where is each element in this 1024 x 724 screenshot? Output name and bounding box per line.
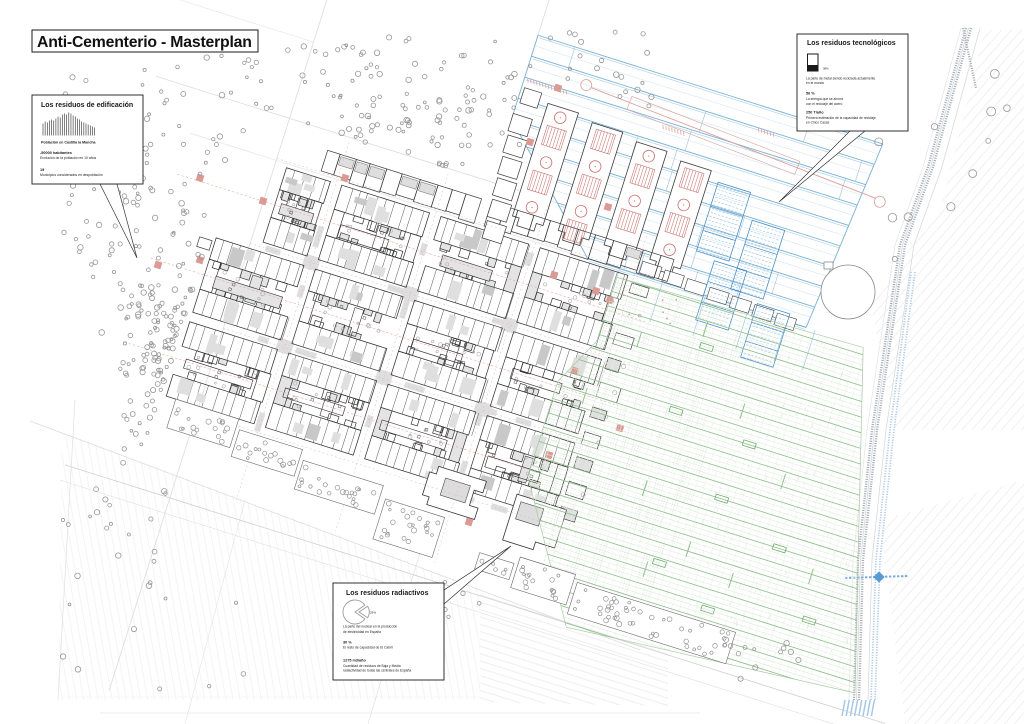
svg-text:Los residuos de edificación: Los residuos de edificación	[41, 102, 133, 109]
svg-text:La parte de metal siendo recic: La parte de metal siendo reciclada actua…	[806, 77, 875, 81]
svg-text:La energía que se ahorra: La energía que se ahorra	[806, 97, 843, 101]
svg-text:en el mundo: en el mundo	[806, 81, 824, 85]
svg-text:Cuantidad de residuos de Baja: Cuantidad de residuos de Baja y Media	[343, 664, 401, 668]
svg-text:en Cinco Casas: en Cinco Casas	[806, 121, 830, 125]
svg-text:56 %: 56 %	[806, 92, 815, 96]
svg-text:30 %: 30 %	[343, 641, 352, 645]
svg-text:El resto de capacidad de El Ca: El resto de capacidad de El Cabril	[343, 646, 393, 650]
svg-text:Municipios considerados en des: Municipios considerados en despoblación	[40, 173, 103, 177]
svg-text:19: 19	[40, 168, 44, 172]
svg-text:Anti-Cementerio - Masterplan: Anti-Cementerio - Masterplan	[37, 34, 252, 51]
svg-text:La parte del nuclear en la pro: La parte del nuclear en la producción	[343, 625, 397, 629]
svg-text:Los residuos tecnológicos: Los residuos tecnológicos	[807, 40, 896, 47]
svg-text:radiactividad de todas las cen: radiactividad de todas las centrales de …	[343, 669, 411, 673]
svg-text:Primera estimación de la capac: Primera estimación de la capacidad de re…	[806, 116, 876, 120]
svg-text:38%: 38%	[823, 67, 829, 71]
svg-text:con el reciclaje del acero: con el reciclaje del acero	[806, 102, 842, 106]
svg-text:Los residuos radiactivos: Los residuos radiactivos	[346, 590, 429, 597]
svg-text:de electricidad en España: de electricidad en España	[343, 630, 381, 634]
svg-text:25%: 25%	[370, 611, 376, 615]
svg-text:250 T/año: 250 T/año	[806, 111, 824, 115]
svg-text:1275 m3/año: 1275 m3/año	[343, 659, 366, 663]
svg-text:-50000 habitantes: -50000 habitantes	[40, 151, 72, 155]
svg-text:Población en Castilla la Manch: Población en Castilla la Mancha	[41, 141, 97, 145]
svg-text:Evolución de la población en 1: Evolución de la población en 10 años	[40, 156, 96, 160]
